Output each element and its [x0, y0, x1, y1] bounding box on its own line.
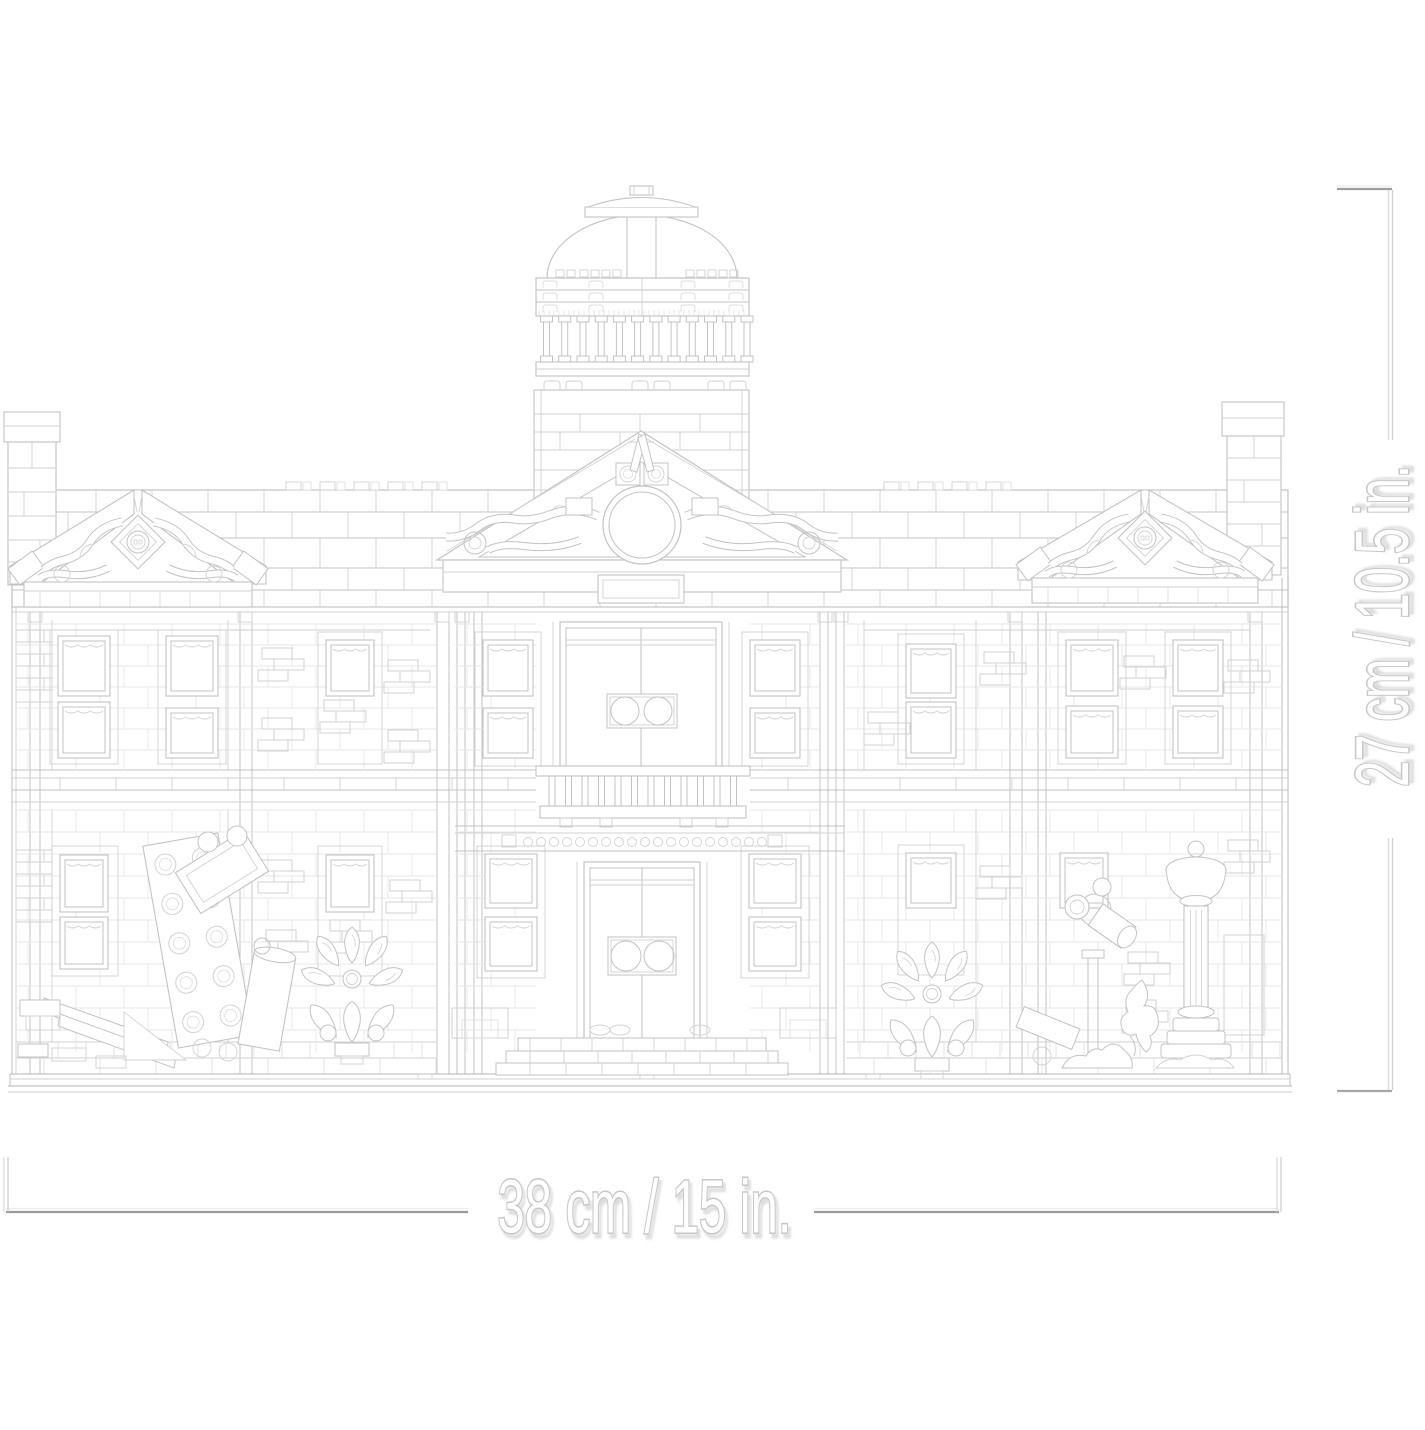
svg-text:27 cm / 10.5 in.: 27 cm / 10.5 in. — [1341, 465, 1425, 787]
svg-text:38 cm / 15 in.: 38 cm / 15 in. — [498, 1166, 792, 1250]
